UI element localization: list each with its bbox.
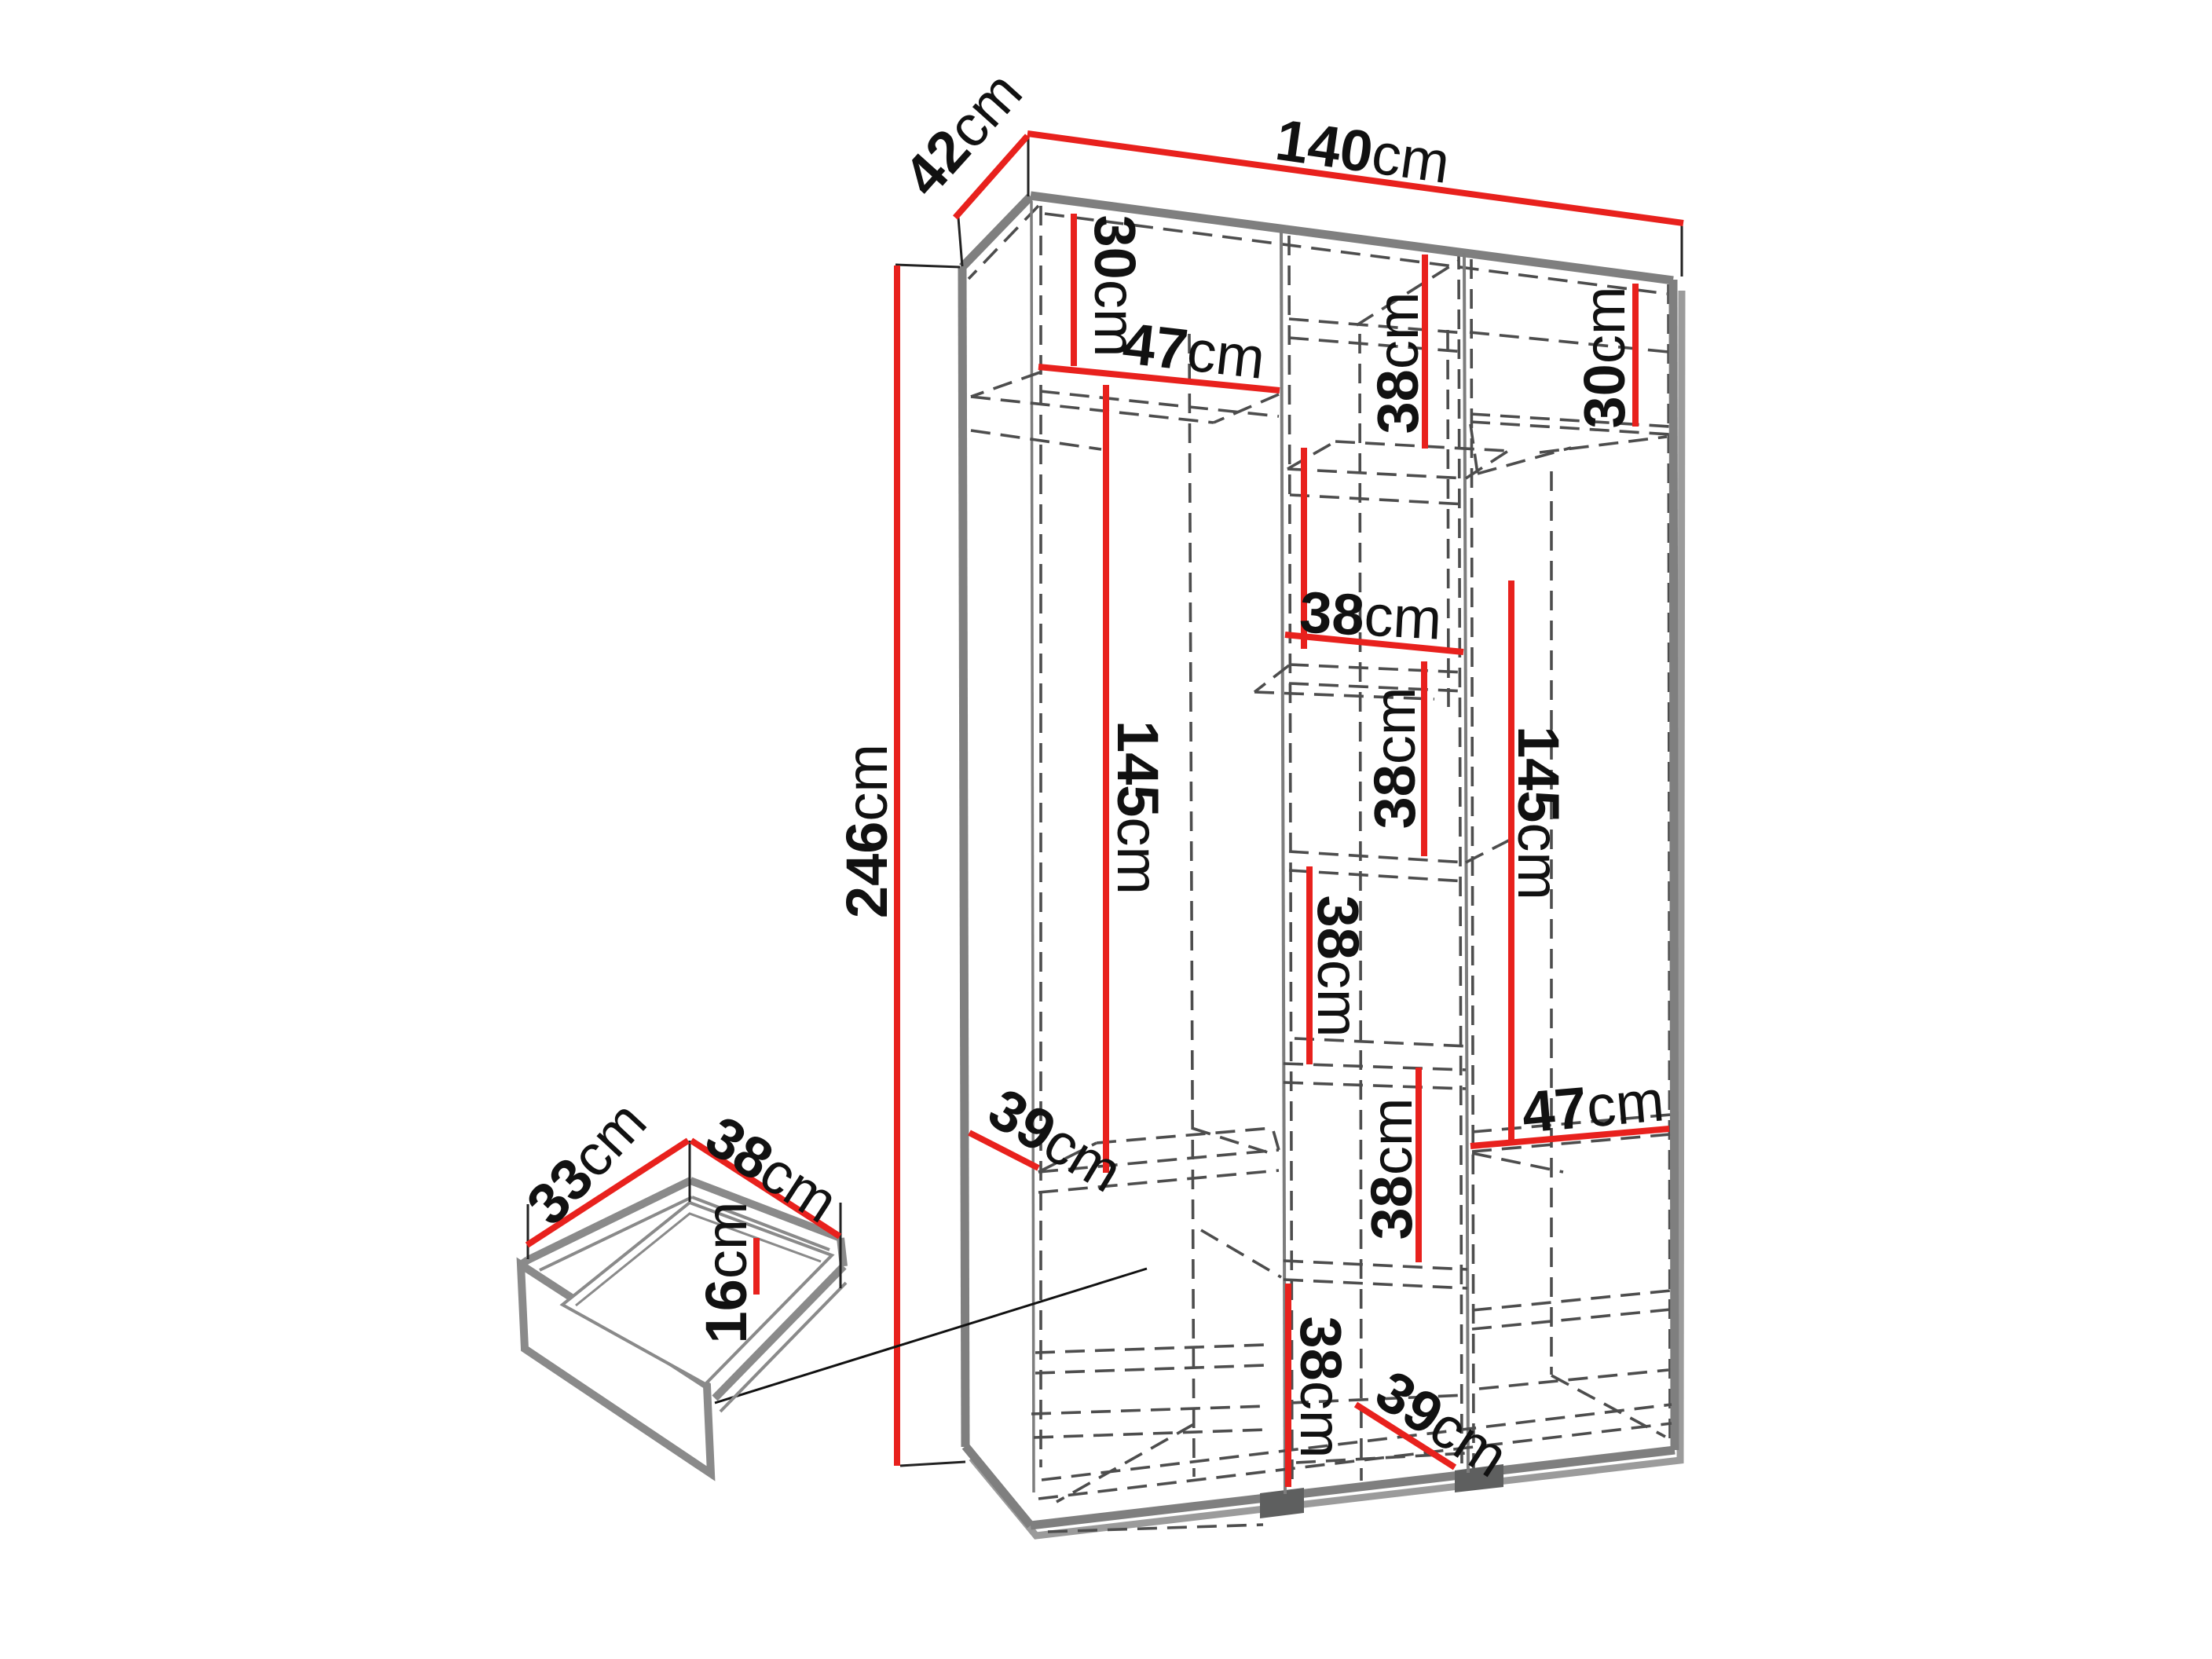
svg-text:38cm: 38cm (1362, 687, 1427, 829)
svg-text:145cm: 145cm (1105, 720, 1170, 895)
svg-text:145cm: 145cm (1506, 726, 1571, 900)
svg-text:38cm: 38cm (1306, 895, 1371, 1038)
svg-text:38cm: 38cm (1365, 292, 1430, 434)
svg-text:47cm: 47cm (1519, 1068, 1667, 1144)
svg-text:16cm: 16cm (694, 1202, 759, 1344)
svg-text:30cm: 30cm (1572, 287, 1637, 429)
svg-text:38cm: 38cm (1359, 1098, 1424, 1240)
svg-text:38cm: 38cm (1298, 579, 1443, 651)
svg-text:38cm: 38cm (1288, 1317, 1353, 1459)
svg-text:246cm: 246cm (834, 744, 899, 918)
